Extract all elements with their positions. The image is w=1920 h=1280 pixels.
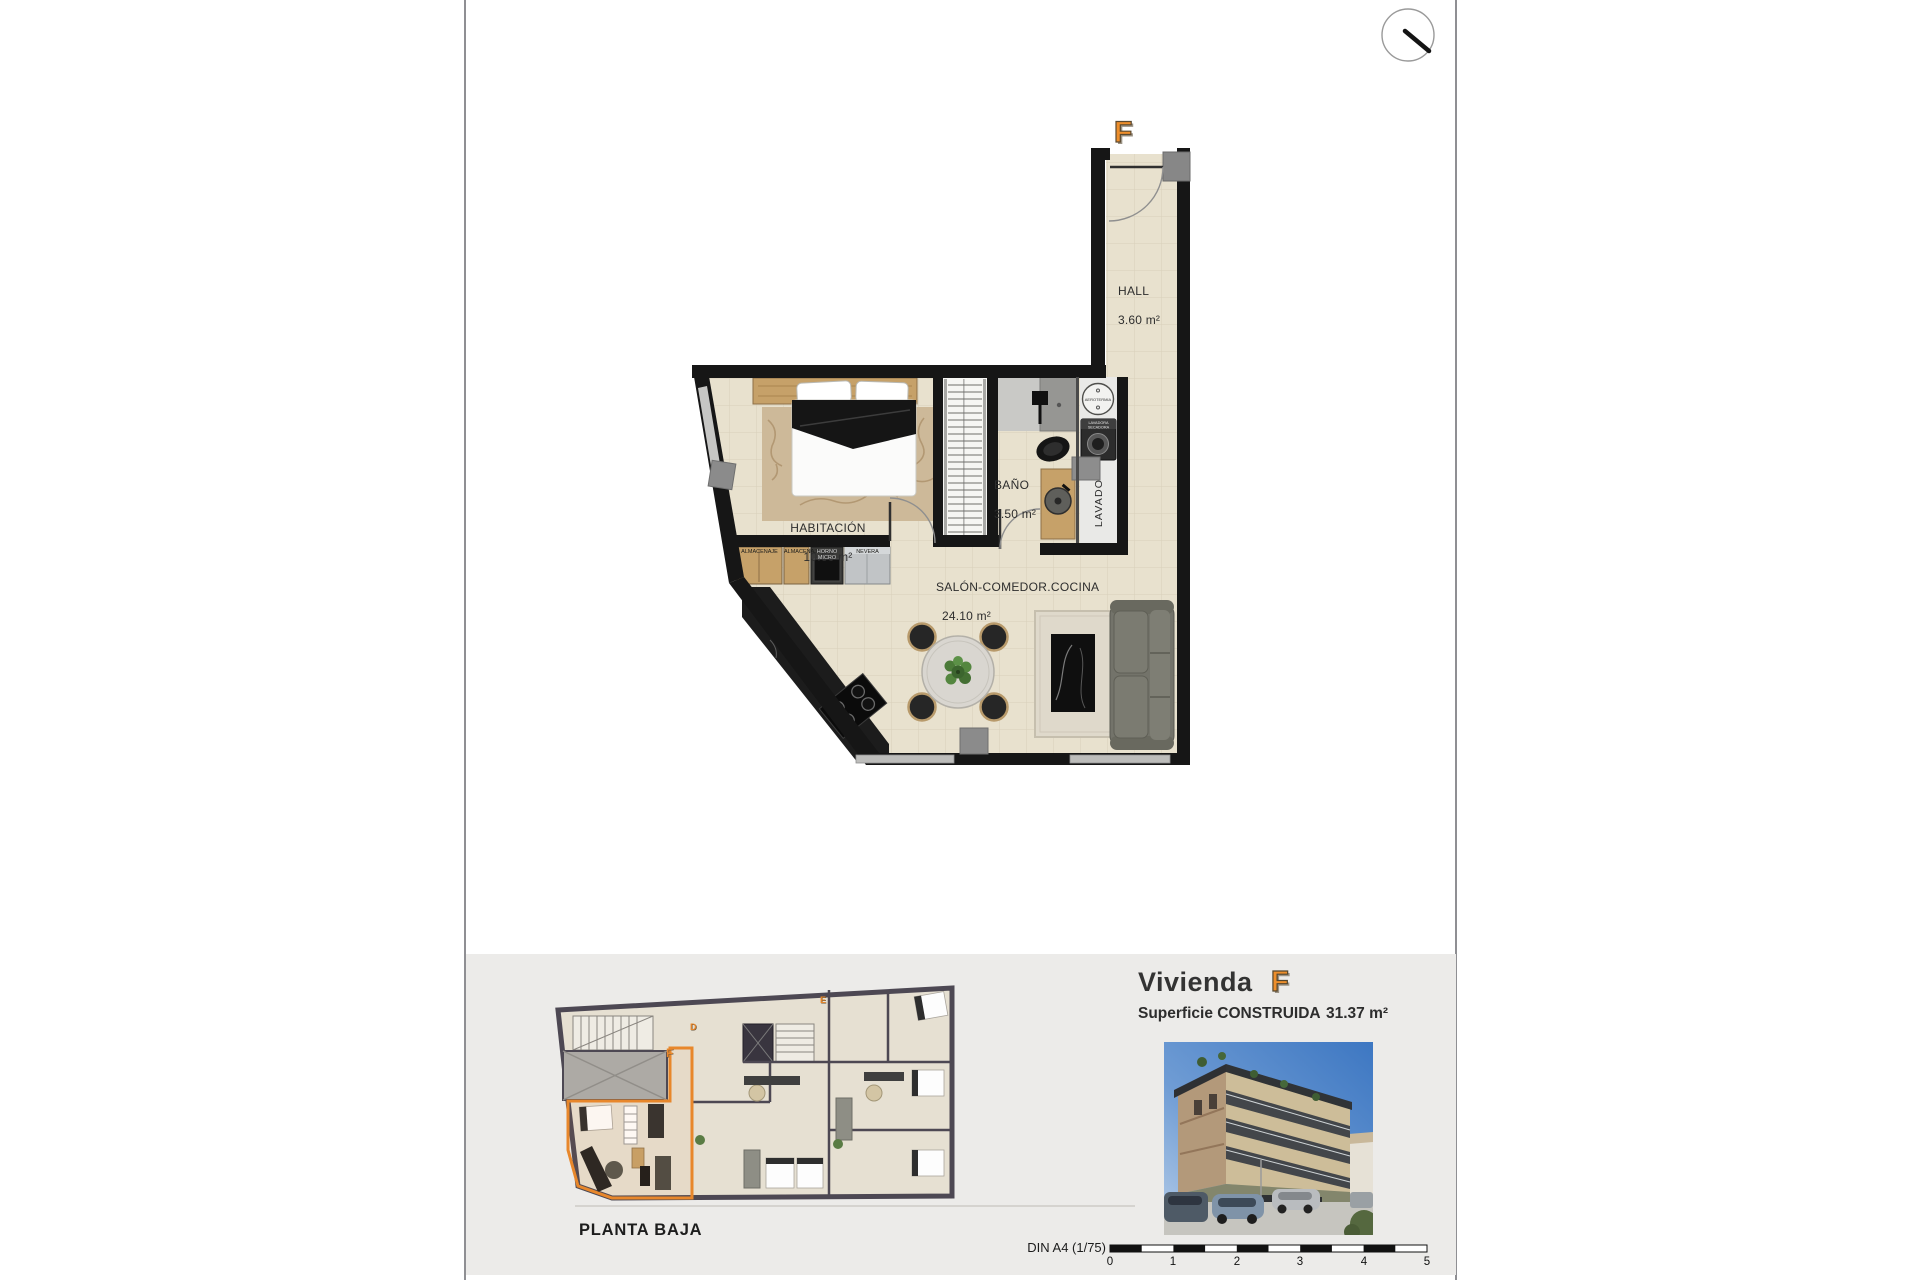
pillar — [960, 728, 988, 754]
pillow — [856, 381, 909, 404]
bed-duvet — [792, 400, 916, 496]
bedroom-label: HABITACIÓN 10.60 m² — [758, 506, 898, 579]
unit-title-prefix: Vivienda — [1138, 967, 1253, 997]
scale-format-label: DIN A4 (1/75) — [1010, 1240, 1106, 1255]
toilet — [1033, 432, 1073, 465]
unit-title-letter: F — [1271, 966, 1289, 998]
plan-unit-letter: F — [1114, 116, 1132, 150]
built-area-label: Superficie CONSTRUIDA — [1138, 1005, 1321, 1023]
hall-label: HALL 3.60 m² — [1118, 269, 1160, 342]
window — [1070, 755, 1170, 763]
laundry-label: LAVADO — [1093, 472, 1105, 534]
cooktop — [819, 674, 886, 739]
bathroom-label: BAÑO 3.50 m² — [994, 463, 1036, 536]
main-floorplan: AEROTERMIA LAVADORA SECADORA — [692, 148, 1190, 765]
chair — [909, 624, 936, 651]
overview-unit-letter-d: D — [690, 1022, 697, 1032]
aerotermia-label: AEROTERMIA — [1085, 397, 1112, 402]
built-area-value: 31.37 m² — [1326, 1005, 1388, 1023]
bath-sink — [1045, 488, 1071, 514]
window — [856, 755, 954, 763]
scale-tick: 5 — [1412, 1256, 1442, 1268]
window — [698, 386, 720, 466]
washer-dryer: LAVADORA SECADORA — [1081, 419, 1116, 460]
overview-unit-letter-f: F — [666, 1046, 673, 1060]
bedroom-rug — [762, 407, 942, 521]
scale-tick: 1 — [1158, 1256, 1188, 1268]
plan-sheet-page: AEROTERMIA LAVADORA SECADORA — [0, 0, 1920, 1280]
wardrobe — [944, 379, 986, 543]
coffee-table — [1051, 634, 1095, 712]
pillow — [797, 381, 852, 405]
svg-text:SECADORA: SECADORA — [1088, 425, 1110, 429]
cabinet-label: ALMACENAJE — [737, 549, 782, 555]
chair — [981, 694, 1008, 721]
svg-text:LAVADORA: LAVADORA — [1088, 421, 1109, 425]
cabinet-label: NEVERA — [845, 549, 890, 555]
scale-tick: 2 — [1222, 1256, 1252, 1268]
bed-blanket — [792, 400, 916, 449]
scale-tick: 4 — [1349, 1256, 1379, 1268]
cabinet-label: HORNO MICRO — [811, 549, 843, 562]
cabinet-label: ALMACENAJE — [784, 549, 809, 555]
overview-unit-letter-e: E — [820, 995, 826, 1005]
scale-tick: 0 — [1095, 1256, 1125, 1268]
unit-title: Vivienda F — [1138, 966, 1289, 999]
walls — [692, 148, 1190, 765]
sofa — [1110, 600, 1174, 750]
shower-faucet — [1032, 391, 1048, 405]
dining-set — [909, 624, 1008, 721]
pillar — [1163, 152, 1190, 181]
scale-tick: 3 — [1285, 1256, 1315, 1268]
kitchen-counter — [742, 587, 889, 763]
bed-headboard — [753, 378, 917, 404]
bath-vanity — [1041, 469, 1075, 539]
living-label: SALÓN-COMEDOR.COCINA 24.10 m² — [936, 565, 1099, 638]
pillar — [708, 460, 736, 489]
chair — [909, 694, 936, 721]
rotate-handle-icon[interactable] — [1378, 5, 1438, 65]
overview-title: PLANTA BAJA — [579, 1221, 702, 1240]
dining-table — [922, 636, 994, 708]
table-plant — [945, 656, 972, 685]
aerotermia-unit — [1083, 384, 1114, 415]
